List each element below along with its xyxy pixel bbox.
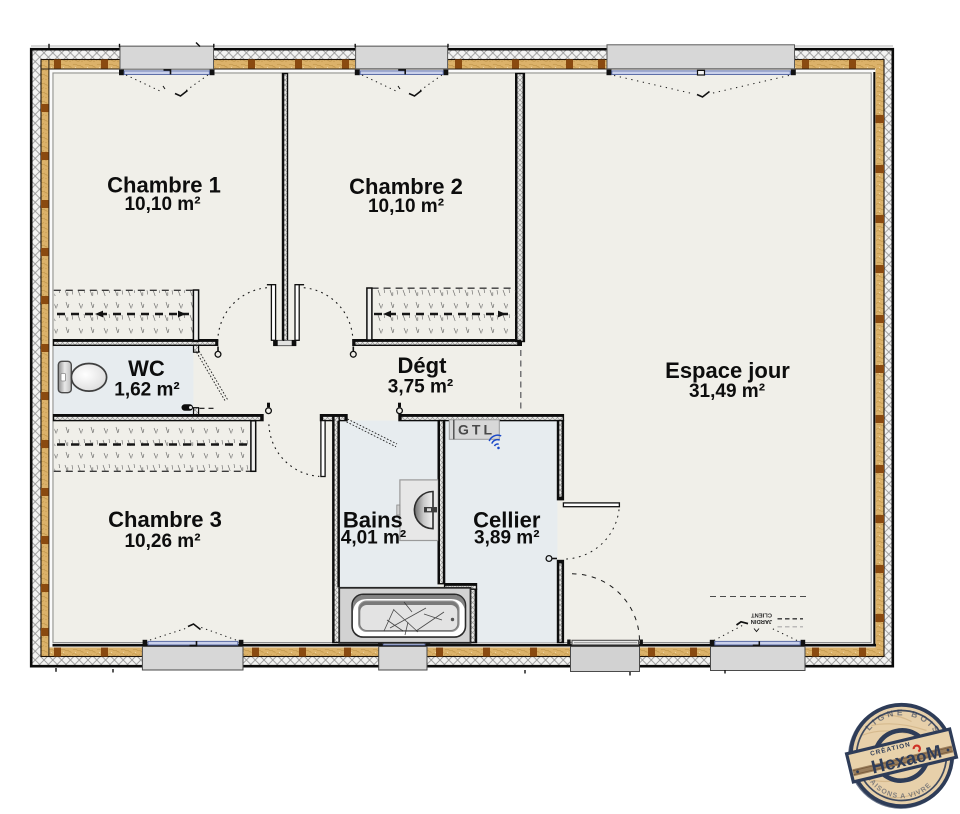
svg-text:4,01 m²: 4,01 m²: [341, 528, 406, 549]
svg-text:10,26 m²: 10,26 m²: [124, 531, 200, 552]
svg-text:GTL: GTL: [458, 422, 495, 438]
svg-text:31,49 m²: 31,49 m²: [689, 381, 765, 402]
svg-text:3,75 m²: 3,75 m²: [388, 377, 453, 398]
svg-text:Chambre 3: Chambre 3: [108, 507, 222, 532]
svg-text:10,10 m²: 10,10 m²: [368, 196, 444, 217]
svg-text:CLIENT: CLIENT: [751, 612, 772, 618]
svg-text:Espace jour: Espace jour: [665, 358, 790, 383]
svg-text:JARDIN: JARDIN: [751, 618, 773, 624]
svg-text:Dégt: Dégt: [398, 353, 448, 378]
svg-text:1,62 m²: 1,62 m²: [114, 380, 179, 401]
svg-text:WC: WC: [128, 356, 165, 381]
svg-text:3,89 m²: 3,89 m²: [474, 528, 539, 549]
svg-text:10,10 m²: 10,10 m²: [124, 194, 200, 215]
